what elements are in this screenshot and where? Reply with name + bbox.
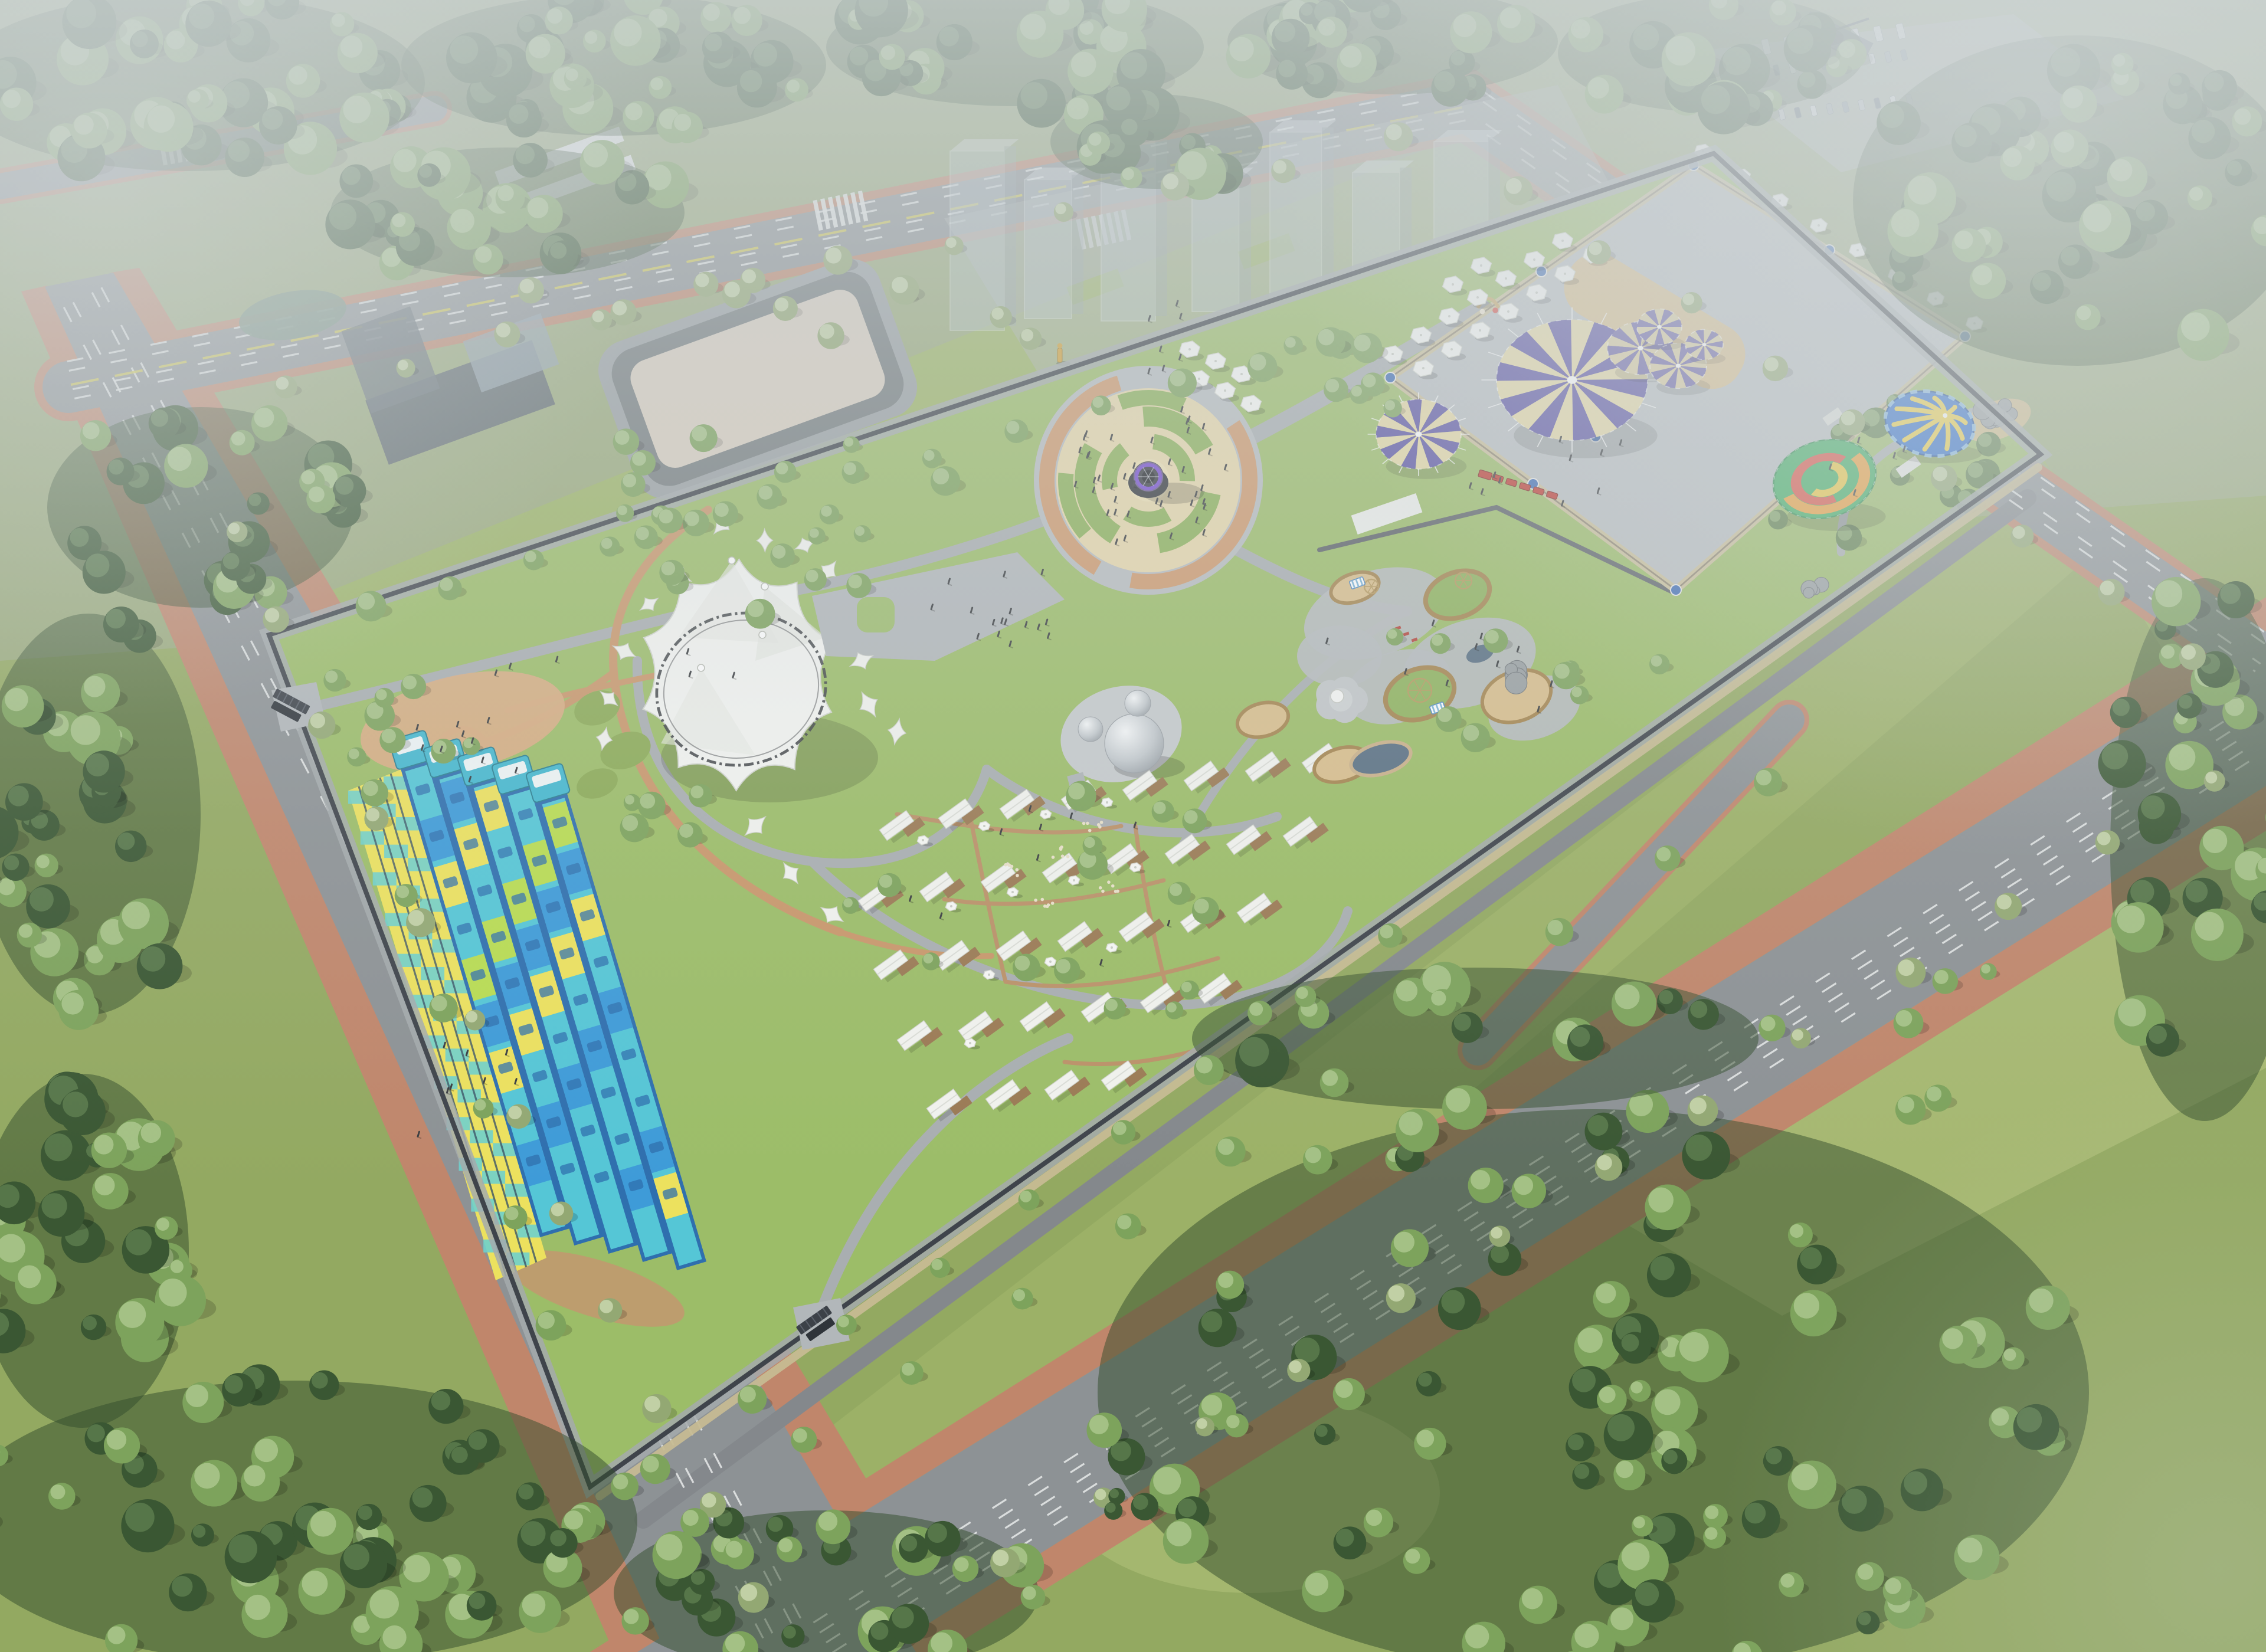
haze-bottomright [0,0,2266,1652]
atmosphere-haze [0,0,2266,1652]
aerial-render [0,0,2266,1652]
